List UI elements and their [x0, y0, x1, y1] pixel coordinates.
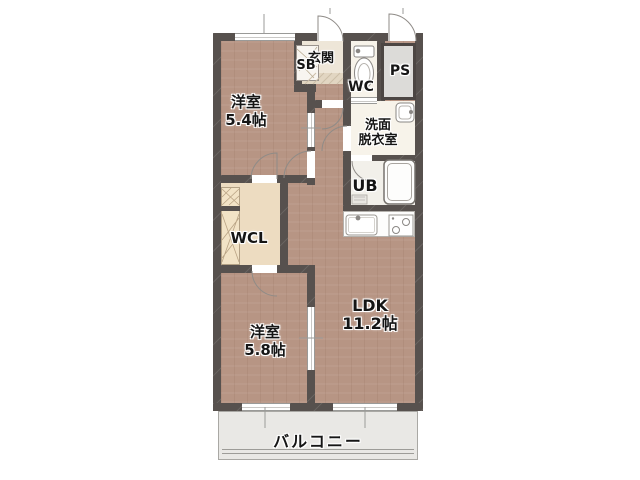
ub-label: UB [345, 176, 385, 195]
plan-symbols [0, 0, 640, 480]
ps-door-arc [389, 14, 416, 41]
wc-label: WC [343, 79, 379, 95]
stove-icon [389, 215, 413, 236]
ldk-name: LDK [325, 297, 415, 315]
washroom-door-arc [322, 126, 347, 151]
ps-label: PS [382, 63, 418, 79]
bathtub-icon [384, 160, 415, 204]
ldk-size: 11.2帖 [325, 315, 415, 333]
wcl-shelf-hatch [222, 188, 239, 262]
balcony-label: バルコニー [248, 428, 388, 452]
entrance-door-arc [318, 16, 343, 41]
shoe-box-label: SB [292, 58, 320, 73]
washroom-label: 洗面 脱衣室 [350, 118, 406, 148]
bed1-hall-door-arc [284, 151, 311, 178]
wcl-bed2-door-arc [252, 271, 277, 296]
ldk-label: LDK 11.2帖 [325, 297, 415, 333]
bedroom1-size: 5.4帖 [201, 111, 291, 129]
bedroom2-size: 5.8帖 [220, 341, 310, 359]
hall-door-arc [322, 108, 343, 129]
washroom-line1: 洗面 [350, 118, 406, 133]
washroom-line2: 脱衣室 [350, 133, 406, 148]
bedroom1-name: 洋室 [201, 93, 291, 111]
bedroom2-label: 洋室 5.8帖 [220, 323, 310, 359]
bedroom2-name: 洋室 [220, 323, 310, 341]
wcl-label: WCL [219, 229, 279, 247]
floor-plan: 洋室 5.4帖 玄関 SB WC PS 洗面 脱衣室 UB WCL 洋室 5.8… [0, 0, 640, 480]
kitchen-sink-icon [346, 215, 377, 235]
bed1-door-arc [251, 153, 277, 179]
bedroom1-label: 洋室 5.4帖 [201, 93, 291, 129]
bath-counter-icon [352, 195, 367, 204]
